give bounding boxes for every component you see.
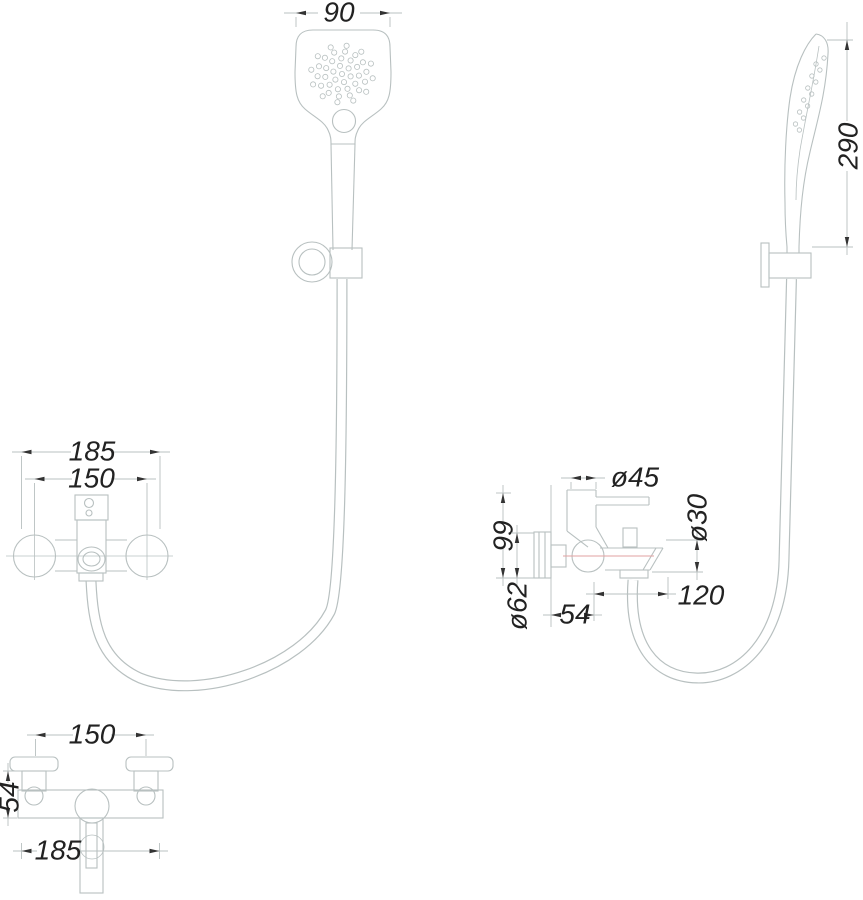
spray-holes-side — [793, 56, 826, 132]
svg-text:99: 99 — [488, 520, 519, 551]
mode-button — [333, 110, 356, 133]
svg-text:ø62: ø62 — [502, 581, 533, 630]
dim-mixer-center-distance: 150 — [25, 463, 156, 533]
svg-text:ø30: ø30 — [682, 493, 713, 542]
mixer-side-view — [534, 485, 663, 627]
escutcheon-plan-right — [126, 757, 173, 771]
diverter-knob — [623, 528, 637, 547]
dim-handle-diameter: ø45 — [561, 462, 660, 493]
dim-spout-reach: 120 — [586, 577, 725, 611]
shower-hose-left — [91, 279, 342, 686]
svg-text:90: 90 — [323, 0, 355, 28]
hose-nut-side — [620, 570, 648, 578]
svg-text:54: 54 — [0, 781, 25, 812]
spout-outlet-front — [78, 547, 105, 571]
handshower-front-view — [295, 30, 391, 250]
dim-head-width: 90 — [284, 0, 402, 28]
svg-text:120: 120 — [678, 580, 725, 611]
mixer-plan-view — [10, 757, 173, 893]
dim-body-height: 99 — [488, 485, 552, 586]
escutcheon-side — [534, 532, 551, 578]
svg-text:54: 54 — [559, 599, 590, 630]
svg-text:185: 185 — [35, 835, 82, 866]
shower-set-drawing: 90 290 185 — [0, 0, 863, 900]
technical-drawing-page: 90 290 185 — [0, 0, 863, 900]
dim-plan-centers: 150 — [27, 719, 154, 757]
svg-text:290: 290 — [833, 122, 863, 170]
dim-plan-depth: 54 — [0, 763, 25, 826]
handshower-side-view — [785, 34, 828, 253]
dim-outlet-diameter: ø30 — [652, 493, 713, 580]
mixer-front-view — [6, 495, 173, 581]
svg-text:150: 150 — [69, 719, 116, 750]
dim-plan-overall-width: 185 — [13, 835, 168, 866]
svg-text:150: 150 — [68, 463, 115, 494]
dimensions: 90 290 185 — [0, 0, 863, 866]
wall-bracket-front — [292, 242, 362, 282]
dim-wall-offset: 54 — [543, 582, 602, 630]
escutcheon-plan-left — [10, 757, 58, 771]
hose-nut-front — [79, 573, 103, 581]
dim-head-height: 290 — [812, 22, 863, 255]
svg-text:ø45: ø45 — [611, 462, 660, 493]
spray-holes-front — [309, 43, 376, 105]
